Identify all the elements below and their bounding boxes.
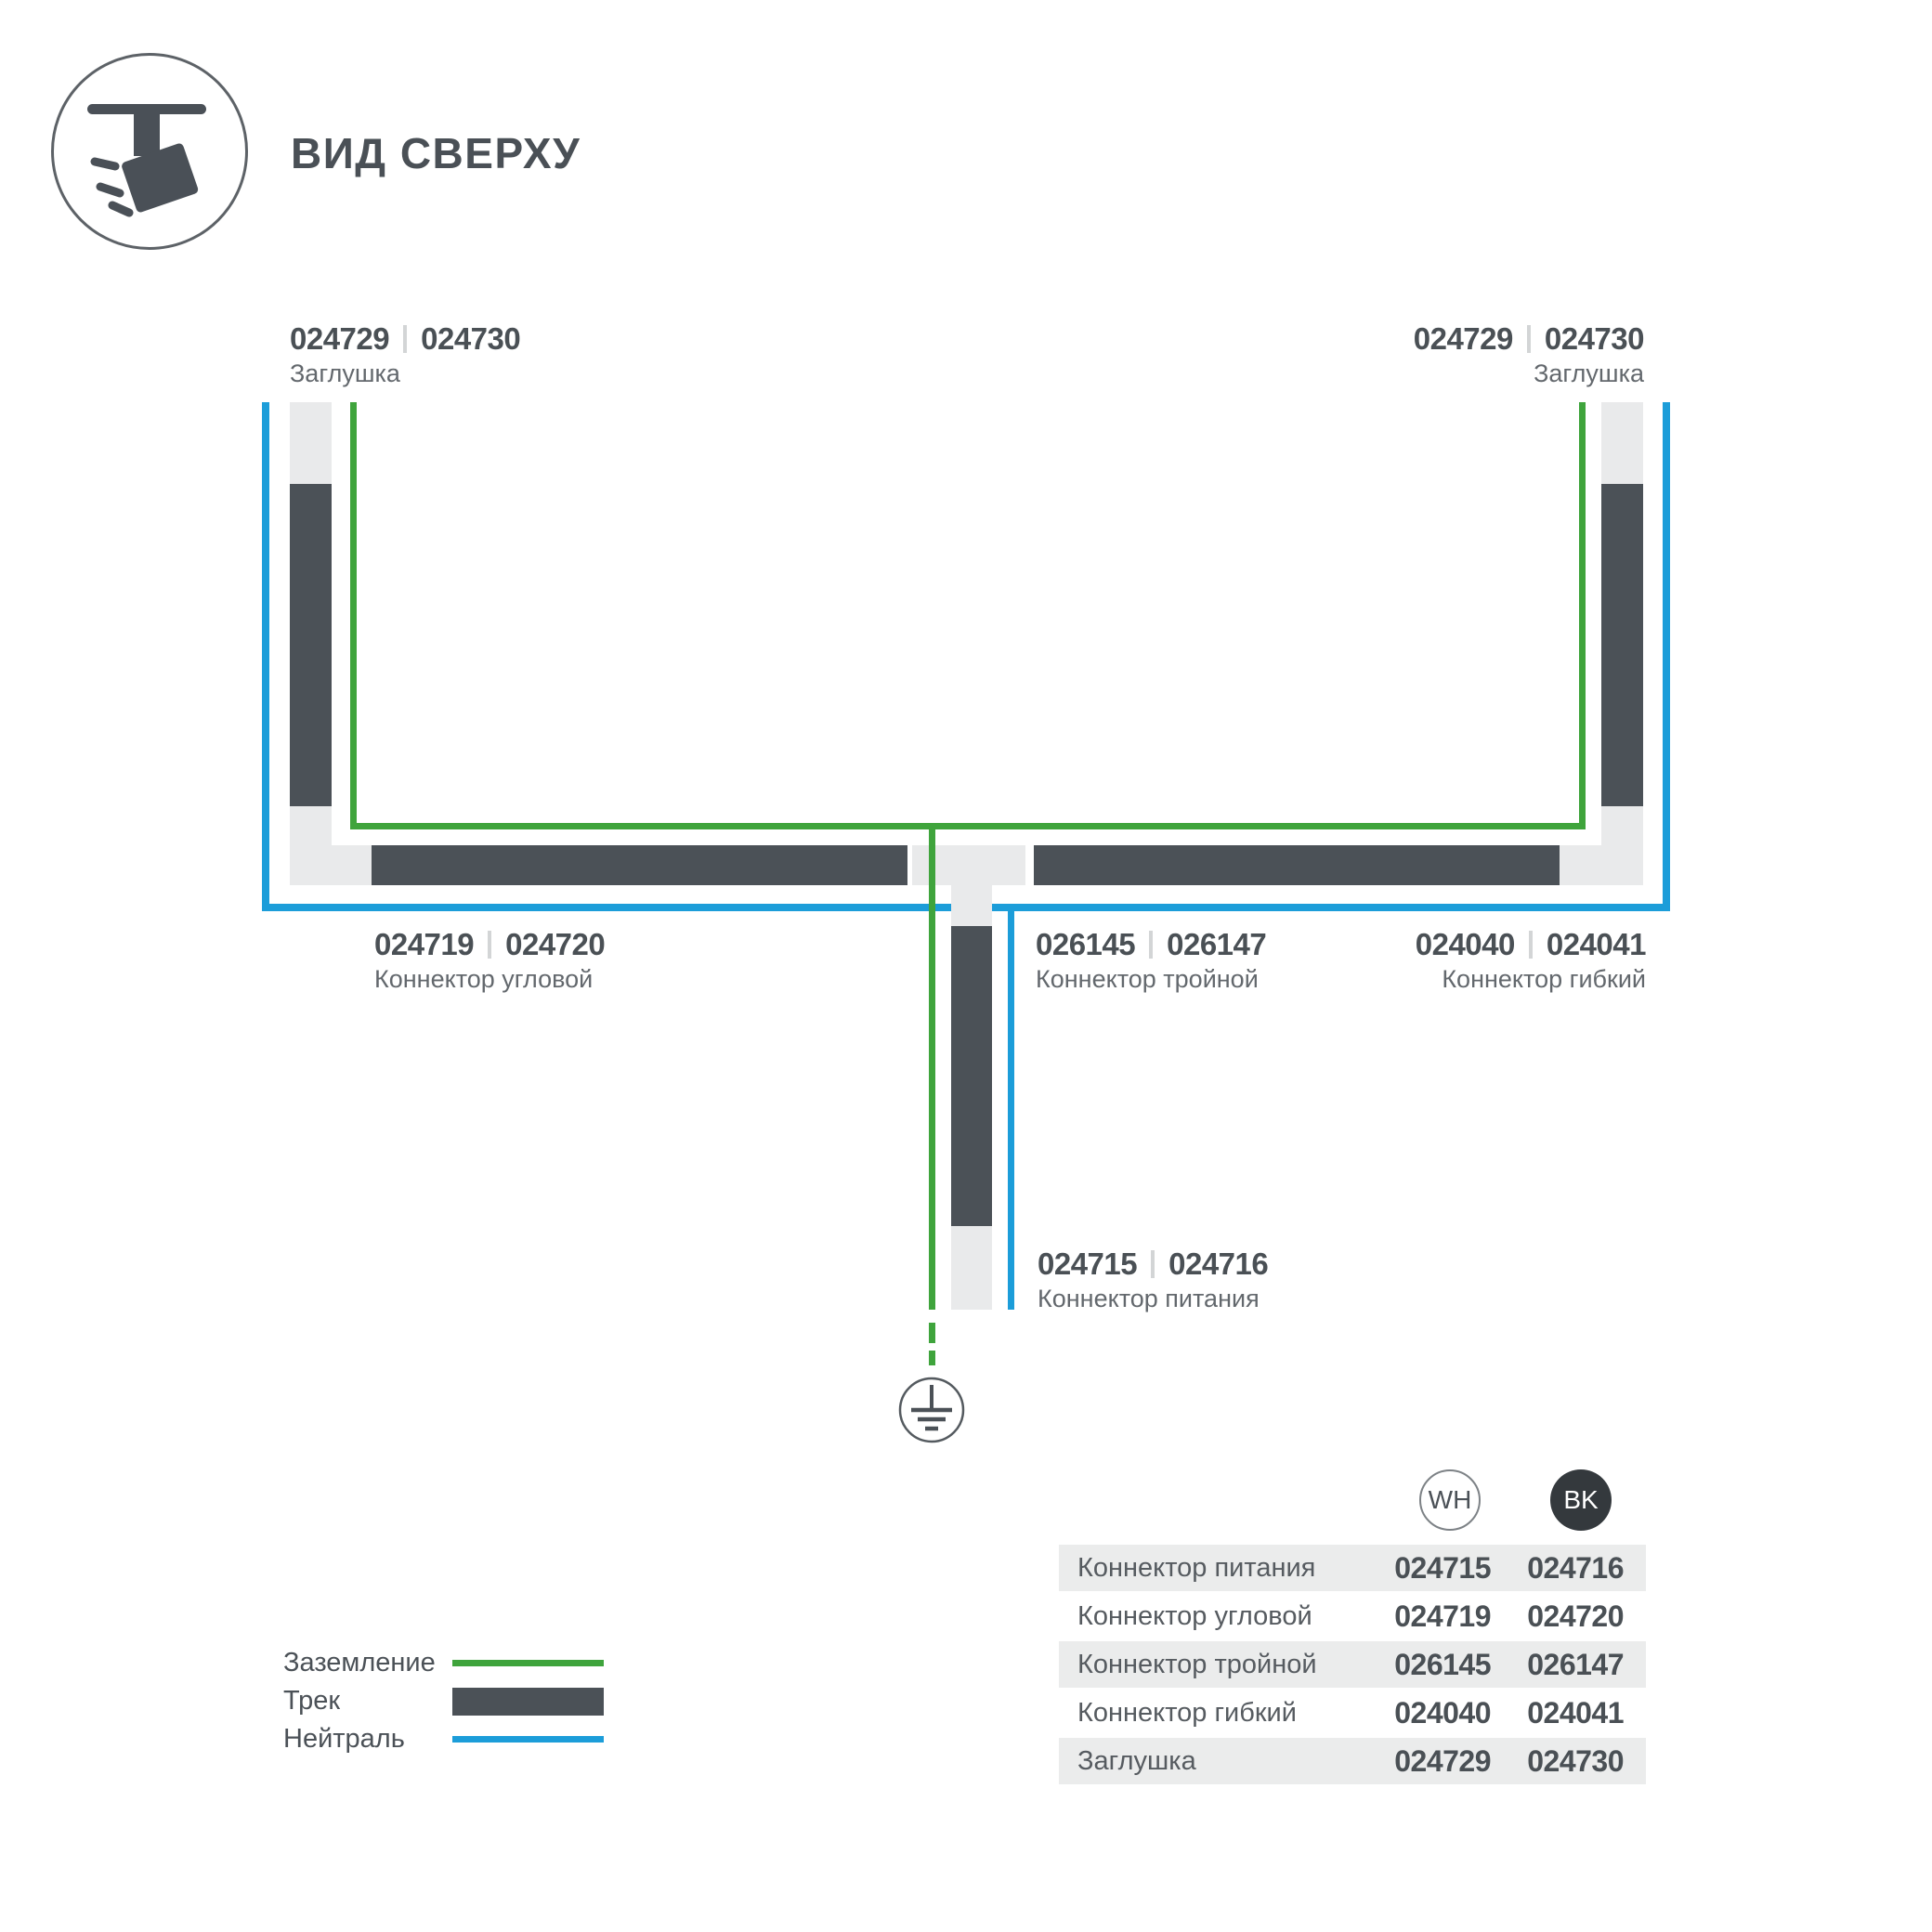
part-code: 024720 [505,929,605,960]
part-name: Коннектор питания [1038,1283,1268,1314]
endcap-left [290,402,332,484]
part-code: 024715 [1038,1248,1137,1280]
triple-connector-stem [951,885,992,926]
flex-connector-horizontal [1560,845,1643,885]
row-name: Коннектор угловой [1059,1601,1347,1632]
part-code: 024730 [1545,323,1644,355]
row-bk-code: 024720 [1491,1599,1624,1634]
part-name: Коннектор тройной [1036,963,1266,995]
row-bk-code: 024041 [1491,1696,1624,1730]
row-wh-code: 024729 [1347,1744,1491,1779]
label-triple-connector: 026145 026147 Коннектор тройной [1036,929,1266,995]
row-wh-code: 026145 [1347,1648,1491,1682]
table-row: Коннектор угловой 024719 024720 [1059,1593,1646,1639]
legend-label: Трек [283,1686,452,1717]
part-code: 026145 [1036,929,1135,960]
part-name: Коннектор угловой [374,963,605,995]
part-name: Коннектор гибкий [1442,963,1646,995]
row-name: Заглушка [1059,1746,1347,1777]
color-badge-white: WH [1419,1469,1481,1531]
legend-item-ground: Заземление [283,1644,604,1682]
label-endcap-left: 024729 024730 Заглушка [290,323,520,389]
part-code: 024730 [421,323,520,355]
label-corner-connector: 024719 024720 Коннектор угловой [374,929,605,995]
code-divider [1529,931,1533,959]
ground-line-center [929,829,935,1310]
code-divider [1151,1250,1155,1278]
legend-item-track: Трек [283,1682,604,1720]
part-code: 024040 [1416,929,1515,960]
track-horizontal-right [1034,845,1560,885]
track-bottom-vertical [951,926,992,1226]
legend-item-neutral: Нейтраль [283,1720,604,1758]
power-connector [951,1226,992,1310]
track-light-icon [51,53,248,250]
row-wh-code: 024719 [1347,1599,1491,1634]
code-divider [1527,325,1531,353]
parts-table: Коннектор питания 024715 024716 Коннекто… [1059,1545,1646,1786]
neutral-line-swatch [452,1736,604,1743]
part-code: 024729 [290,323,389,355]
row-name: Коннектор питания [1059,1553,1347,1584]
code-divider [403,325,407,353]
track-swatch [452,1688,604,1716]
part-code: 024041 [1547,929,1646,960]
part-code: 024716 [1168,1248,1268,1280]
endcap-right [1601,402,1643,484]
earth-symbol [897,1375,968,1450]
code-divider [1149,931,1153,959]
part-code: 026147 [1167,929,1266,960]
page-title: ВИД СВЕРХУ [291,128,581,178]
row-bk-code: 024730 [1491,1744,1624,1779]
neutral-line-left [262,402,269,911]
neutral-line-branch [1008,911,1014,1310]
ground-line-dash-2 [929,1351,935,1365]
legend-label: Заземление [283,1648,452,1678]
table-row: Коннектор тройной 026145 026147 [1059,1641,1646,1688]
legend: Заземление Трек Нейтраль [283,1644,604,1758]
label-flex-connector: 024040 024041 Коннектор гибкий [1416,929,1646,995]
color-badge-black: BK [1550,1469,1612,1531]
table-row: Коннектор гибкий 024040 024041 [1059,1690,1646,1736]
ground-line-left [350,402,357,829]
row-name: Коннектор тройной [1059,1650,1347,1680]
ground-line-dash-1 [929,1323,935,1343]
label-power-connector: 024715 024716 Коннектор питания [1038,1248,1268,1314]
table-row: Коннектор питания 024715 024716 [1059,1545,1646,1591]
part-name: Заглушка [1534,358,1644,389]
legend-label: Нейтраль [283,1724,452,1755]
row-wh-code: 024715 [1347,1551,1491,1586]
spotlight-glyph [54,56,245,247]
ground-line-right [1579,402,1586,829]
part-code: 024729 [1414,323,1513,355]
ground-line-swatch [452,1660,604,1666]
track-right-vertical [1601,484,1643,806]
track-left-vertical [290,484,332,806]
flex-connector-vertical [1601,806,1643,845]
row-bk-code: 026147 [1491,1648,1624,1682]
row-name: Коннектор гибкий [1059,1698,1347,1729]
corner-connector-horizontal [290,845,372,885]
table-row: Заглушка 024729 024730 [1059,1738,1646,1784]
neutral-line-right [1663,402,1670,911]
code-divider [488,931,491,959]
row-bk-code: 024716 [1491,1551,1624,1586]
track-horizontal-left [372,845,907,885]
ground-line-top [350,823,1586,829]
part-name: Заглушка [290,358,520,389]
label-endcap-right: 024729 024730 Заглушка [1414,323,1644,389]
part-code: 024719 [374,929,474,960]
row-wh-code: 024040 [1347,1696,1491,1730]
